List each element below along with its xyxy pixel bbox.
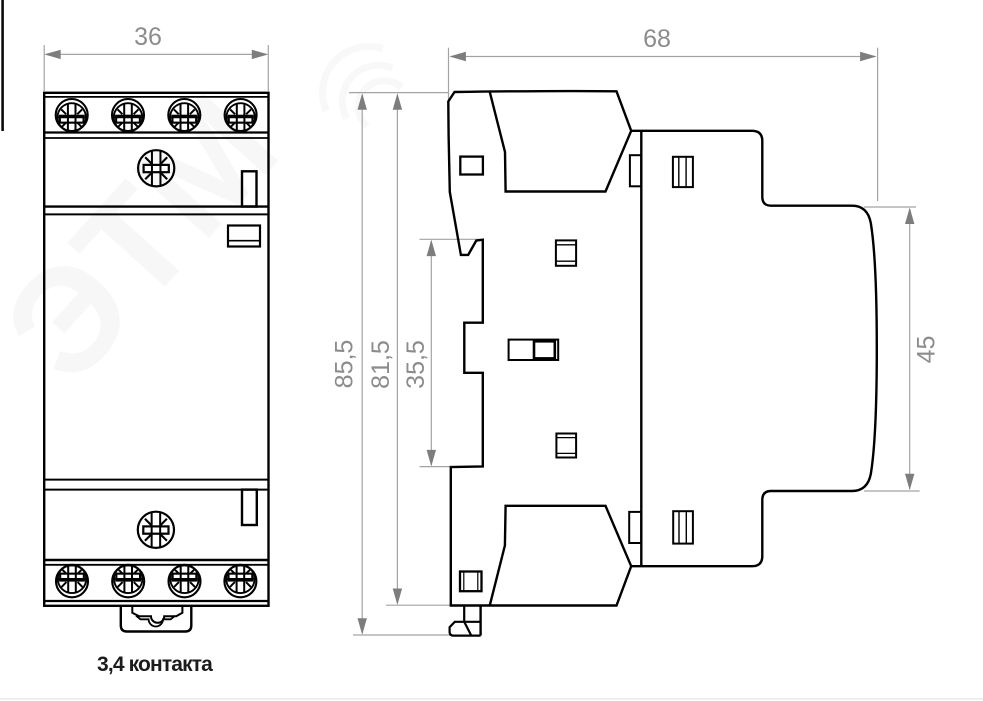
svg-text:85,5: 85,5 — [331, 340, 359, 389]
svg-text:36: 36 — [134, 23, 162, 51]
svg-text:ЭТМ: ЭТМ — [0, 64, 309, 411]
svg-text:45: 45 — [913, 336, 941, 364]
svg-text:68: 68 — [643, 25, 671, 53]
svg-text:3,4 контакта: 3,4 контакта — [97, 653, 213, 676]
svg-text:35,5: 35,5 — [402, 340, 430, 389]
svg-text:81,5: 81,5 — [367, 340, 395, 389]
